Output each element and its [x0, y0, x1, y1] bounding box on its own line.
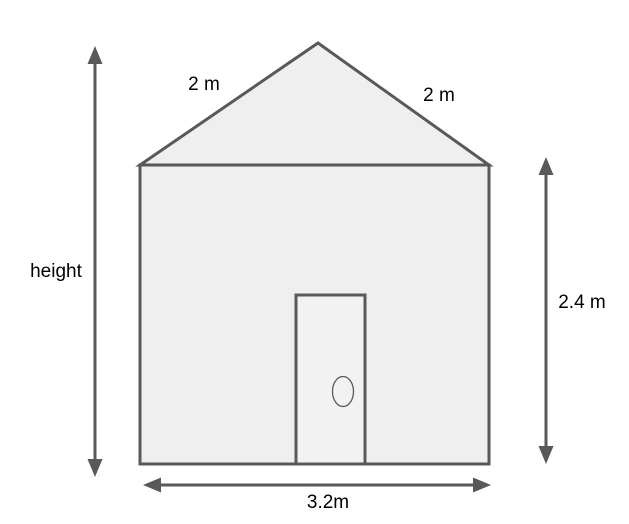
base-width-arrow-left-head-icon — [143, 478, 161, 493]
height-dimension-arrow — [88, 46, 103, 477]
roof-left-length-label: 2 m — [188, 74, 220, 95]
wall-height-dimension-arrow — [539, 157, 554, 464]
diagram-canvas: 2 m 2 m height 2.4 m 3.2m — [0, 0, 629, 524]
height-arrow-up-head-icon — [88, 46, 103, 64]
wall-height-arrow-up-head-icon — [539, 157, 554, 175]
height-arrow-down-head-icon — [88, 459, 103, 477]
wall-height-label: 2.4 m — [558, 292, 606, 313]
house-dimensions-figure: 2 m 2 m height 2.4 m 3.2m — [0, 0, 629, 524]
door — [296, 295, 365, 464]
height-label: height — [30, 261, 82, 282]
base-width-arrow-right-head-icon — [473, 478, 491, 493]
base-width-dimension-arrow — [143, 478, 491, 493]
wall-height-arrow-down-head-icon — [539, 446, 554, 464]
base-width-label: 3.2m — [307, 492, 349, 513]
roof-right-length-label: 2 m — [423, 85, 455, 106]
